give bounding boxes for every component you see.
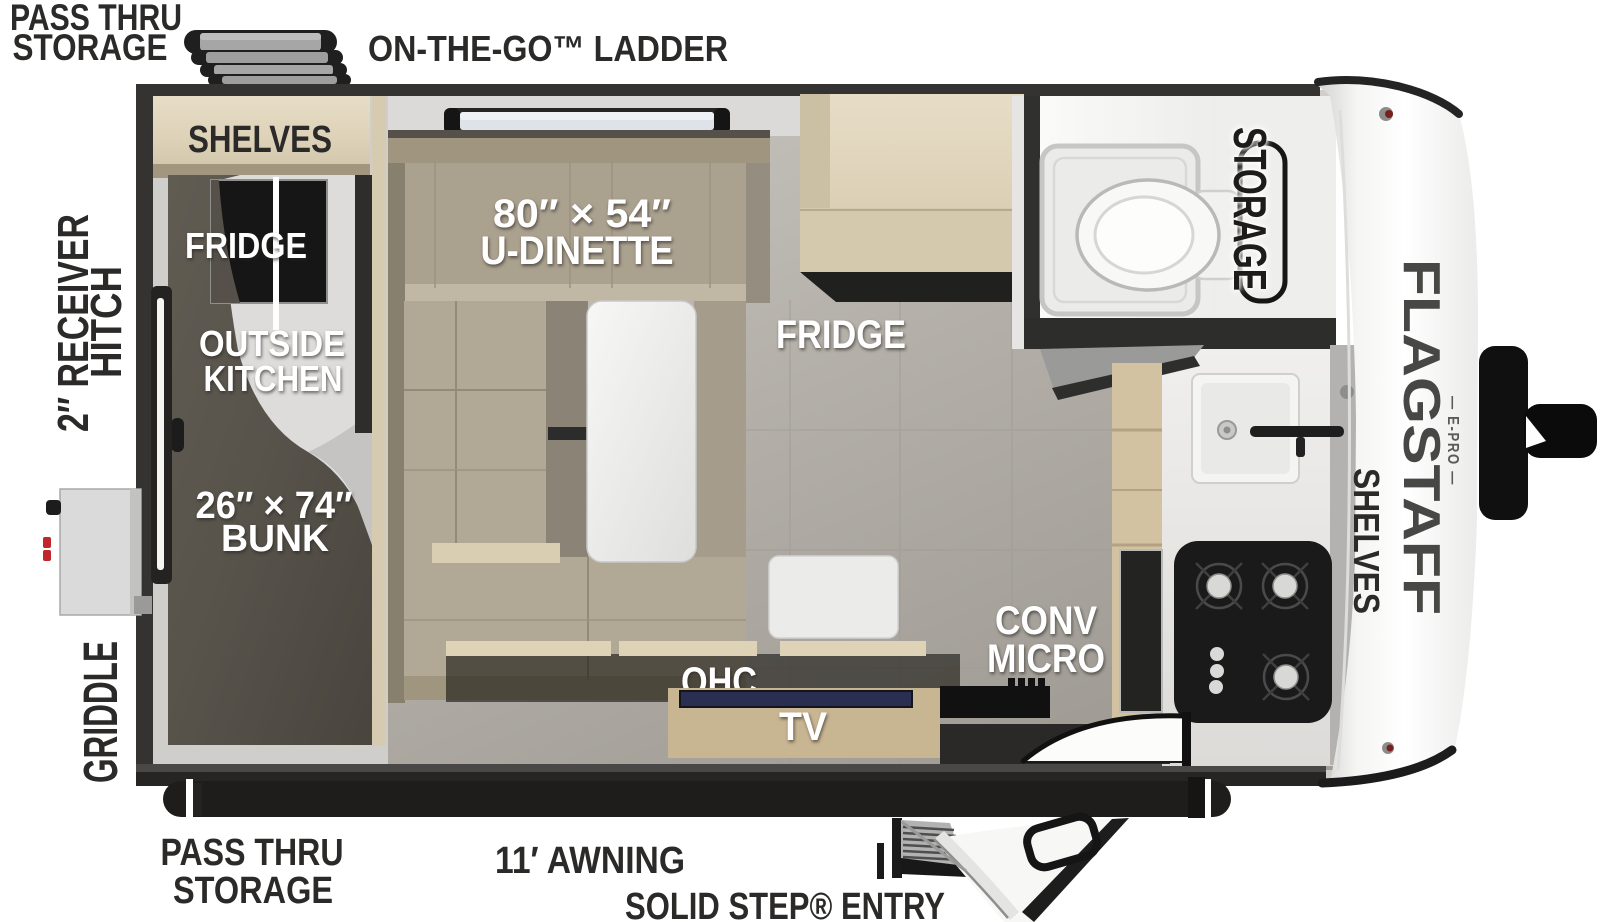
- svg-text:U-DINETTE: U-DINETTE: [481, 229, 674, 273]
- svg-text:GRIDDLE: GRIDDLE: [75, 641, 128, 783]
- svg-text:SOLID STEP® ENTRY: SOLID STEP® ENTRY: [625, 886, 945, 922]
- svg-text:ON-THE-GO™ LADDER: ON-THE-GO™ LADDER: [368, 28, 728, 69]
- svg-text:BUNK: BUNK: [221, 518, 330, 560]
- svg-text:TV: TV: [779, 705, 827, 749]
- svg-text:PASS THRU: PASS THRU: [161, 832, 344, 874]
- svg-text:SHELVES: SHELVES: [1346, 468, 1387, 614]
- svg-text:STORAGE: STORAGE: [13, 27, 168, 68]
- svg-text:FRIDGE: FRIDGE: [776, 313, 906, 357]
- svg-text:HITCH: HITCH: [82, 266, 131, 378]
- svg-text:STORAGE: STORAGE: [1224, 127, 1276, 291]
- svg-text:MICRO: MICRO: [987, 637, 1105, 681]
- svg-text:— E-PRO —: — E-PRO —: [1444, 396, 1461, 486]
- svg-text:11′ AWNING: 11′ AWNING: [495, 840, 685, 882]
- svg-text:KITCHEN: KITCHEN: [204, 358, 343, 399]
- svg-text:FRIDGE: FRIDGE: [185, 225, 307, 266]
- svg-text:STORAGE: STORAGE: [173, 870, 333, 912]
- svg-text:FLAGSTAFF: FLAGSTAFF: [1392, 259, 1450, 615]
- svg-text:SHELVES: SHELVES: [188, 119, 332, 161]
